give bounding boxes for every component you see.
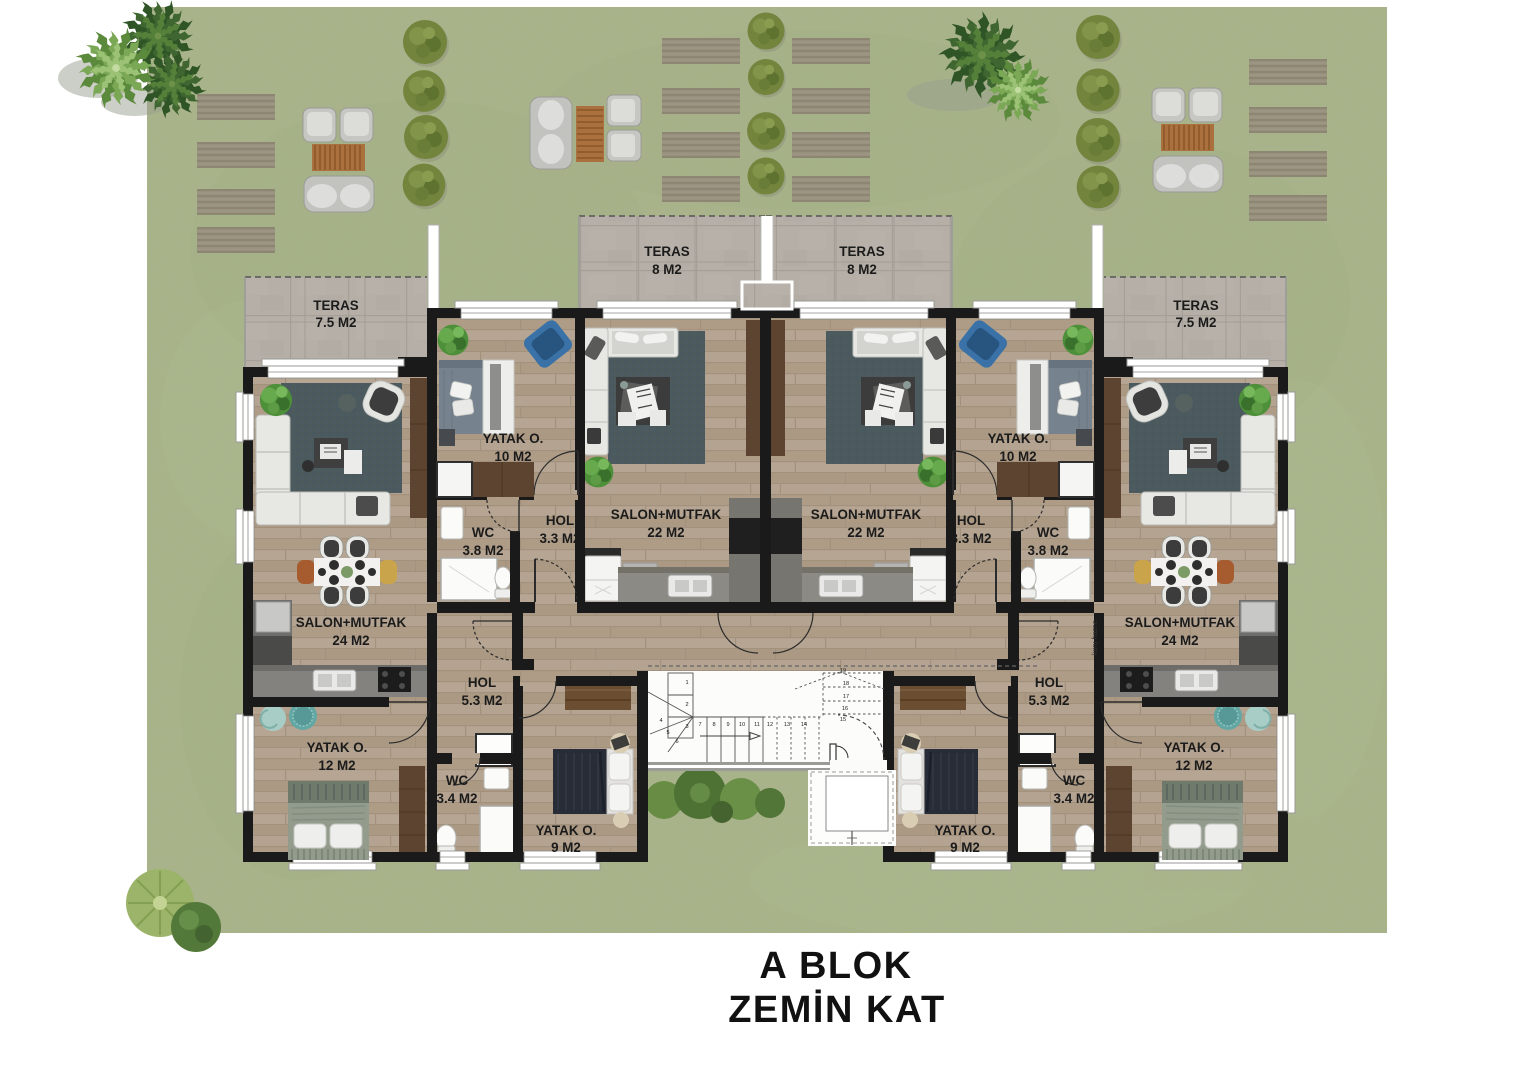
svg-text:19: 19 — [840, 668, 846, 674]
svg-text:7.5 M2: 7.5 M2 — [316, 315, 357, 330]
svg-text:YATAK O.: YATAK O. — [988, 431, 1049, 446]
svg-text:10 M2: 10 M2 — [494, 449, 531, 464]
svg-text:YATAK O.: YATAK O. — [1164, 740, 1225, 755]
svg-text:SALON+MUTFAK: SALON+MUTFAK — [611, 507, 722, 522]
svg-text:HOL: HOL — [1035, 675, 1063, 690]
svg-text:SALON+MUTFAK: SALON+MUTFAK — [296, 615, 407, 630]
svg-text:SALON+MUTFAK: SALON+MUTFAK — [811, 507, 922, 522]
svg-text:A BLOK: A BLOK — [759, 945, 912, 987]
svg-text:8 M2: 8 M2 — [847, 262, 877, 277]
svg-text:9: 9 — [726, 722, 729, 728]
svg-text:WC: WC — [1037, 525, 1060, 540]
svg-text:15: 15 — [840, 717, 846, 723]
svg-text:WC: WC — [1063, 773, 1086, 788]
svg-text:5: 5 — [666, 730, 669, 736]
svg-text:10 M2: 10 M2 — [999, 449, 1036, 464]
svg-text:22 M2: 22 M2 — [647, 525, 684, 540]
svg-text:17: 17 — [843, 694, 849, 700]
svg-text:3.8 M2: 3.8 M2 — [1028, 543, 1069, 558]
svg-text:10: 10 — [739, 722, 745, 728]
svg-text:24 M2: 24 M2 — [332, 633, 369, 648]
svg-text:6: 6 — [675, 739, 678, 745]
svg-text:9 M2: 9 M2 — [950, 840, 980, 855]
svg-text:8: 8 — [712, 722, 715, 728]
svg-text:2: 2 — [685, 702, 688, 708]
svg-text:4: 4 — [659, 718, 662, 724]
svg-text:ZEMİN KAT: ZEMİN KAT — [728, 989, 946, 1031]
svg-text:14: 14 — [801, 722, 807, 728]
svg-text:YATAK O.: YATAK O. — [483, 431, 544, 446]
svg-text:YATAK O.: YATAK O. — [935, 823, 996, 838]
svg-text:9 M2: 9 M2 — [551, 840, 581, 855]
svg-text:3: 3 — [685, 724, 688, 730]
svg-text:kuru hazne: kuru hazne — [1092, 620, 1099, 655]
svg-text:12: 12 — [767, 722, 773, 728]
svg-text:1: 1 — [685, 680, 688, 686]
svg-text:3.3 M2: 3.3 M2 — [540, 531, 581, 546]
svg-text:YATAK O.: YATAK O. — [307, 740, 368, 755]
svg-text:12 M2: 12 M2 — [1175, 758, 1212, 773]
svg-text:16: 16 — [842, 706, 848, 712]
svg-text:11: 11 — [754, 722, 760, 728]
svg-text:22 M2: 22 M2 — [847, 525, 884, 540]
svg-text:TERAS: TERAS — [839, 244, 884, 259]
svg-text:3.3 M2: 3.3 M2 — [951, 531, 992, 546]
svg-text:5.3 M2: 5.3 M2 — [1029, 693, 1070, 708]
svg-text:3.8 M2: 3.8 M2 — [463, 543, 504, 558]
svg-text:24 M2: 24 M2 — [1161, 633, 1198, 648]
svg-text:5.3 M2: 5.3 M2 — [462, 693, 503, 708]
svg-text:8 M2: 8 M2 — [652, 262, 682, 277]
svg-text:12 M2: 12 M2 — [318, 758, 355, 773]
svg-text:18: 18 — [843, 681, 849, 687]
svg-text:TERAS: TERAS — [313, 298, 358, 313]
svg-text:3.4 M2: 3.4 M2 — [1054, 791, 1095, 806]
svg-text:7.5 M2: 7.5 M2 — [1176, 315, 1217, 330]
svg-text:WC: WC — [472, 525, 495, 540]
svg-text:WC: WC — [446, 773, 469, 788]
svg-text:HOL: HOL — [468, 675, 496, 690]
svg-text:HOL: HOL — [957, 513, 985, 528]
svg-text:TERAS: TERAS — [1173, 298, 1218, 313]
svg-text:YATAK O.: YATAK O. — [536, 823, 597, 838]
svg-text:SALON+MUTFAK: SALON+MUTFAK — [1125, 615, 1236, 630]
svg-text:7: 7 — [698, 722, 701, 728]
svg-text:13: 13 — [784, 722, 790, 728]
svg-text:HOL: HOL — [546, 513, 574, 528]
svg-text:3.4 M2: 3.4 M2 — [437, 791, 478, 806]
svg-text:TERAS: TERAS — [644, 244, 689, 259]
